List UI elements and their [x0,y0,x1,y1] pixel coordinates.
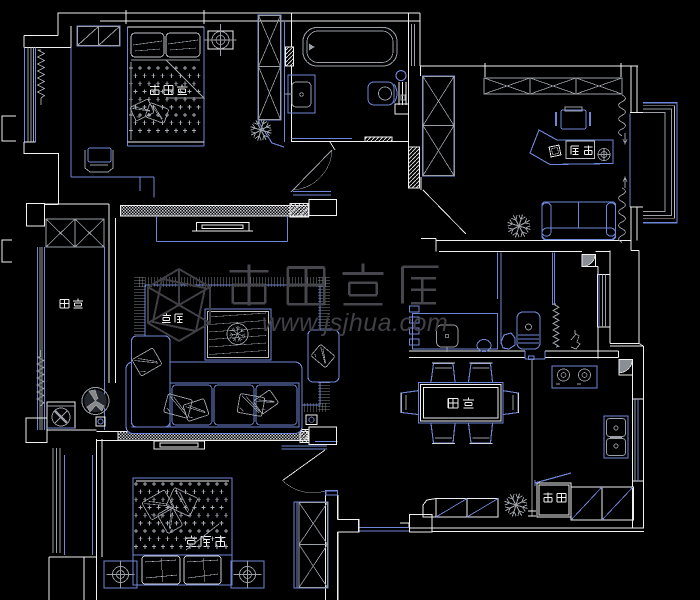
svg-text:www.jsjhua.com: www.jsjhua.com [262,309,448,337]
